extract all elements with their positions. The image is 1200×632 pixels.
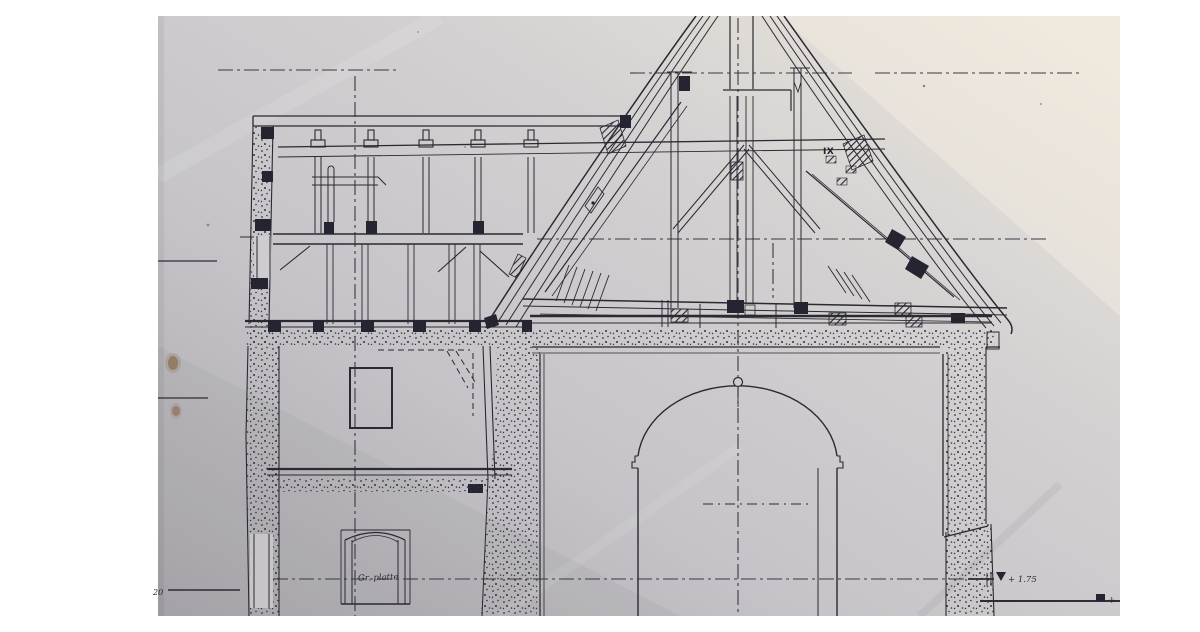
truss-label: IX [823, 147, 834, 157]
cornice-fill [523, 328, 995, 345]
keystone-circle [734, 378, 743, 387]
photo-of-architectural-section-drawing: IX Gr. platte + 1.75 + 20 [40, 16, 1200, 616]
bottom-left-note: 20 [152, 588, 163, 597]
section-drawing-canvas: IX Gr. platte + 1.75 + 20 [40, 16, 1200, 616]
window-note: Gr. platte [358, 572, 399, 583]
floor-fill [246, 329, 531, 345]
wall-opening [250, 534, 273, 608]
level-annotation-upper: + 1.75 [1008, 575, 1037, 585]
level-annotation-lower: + [1108, 596, 1116, 606]
